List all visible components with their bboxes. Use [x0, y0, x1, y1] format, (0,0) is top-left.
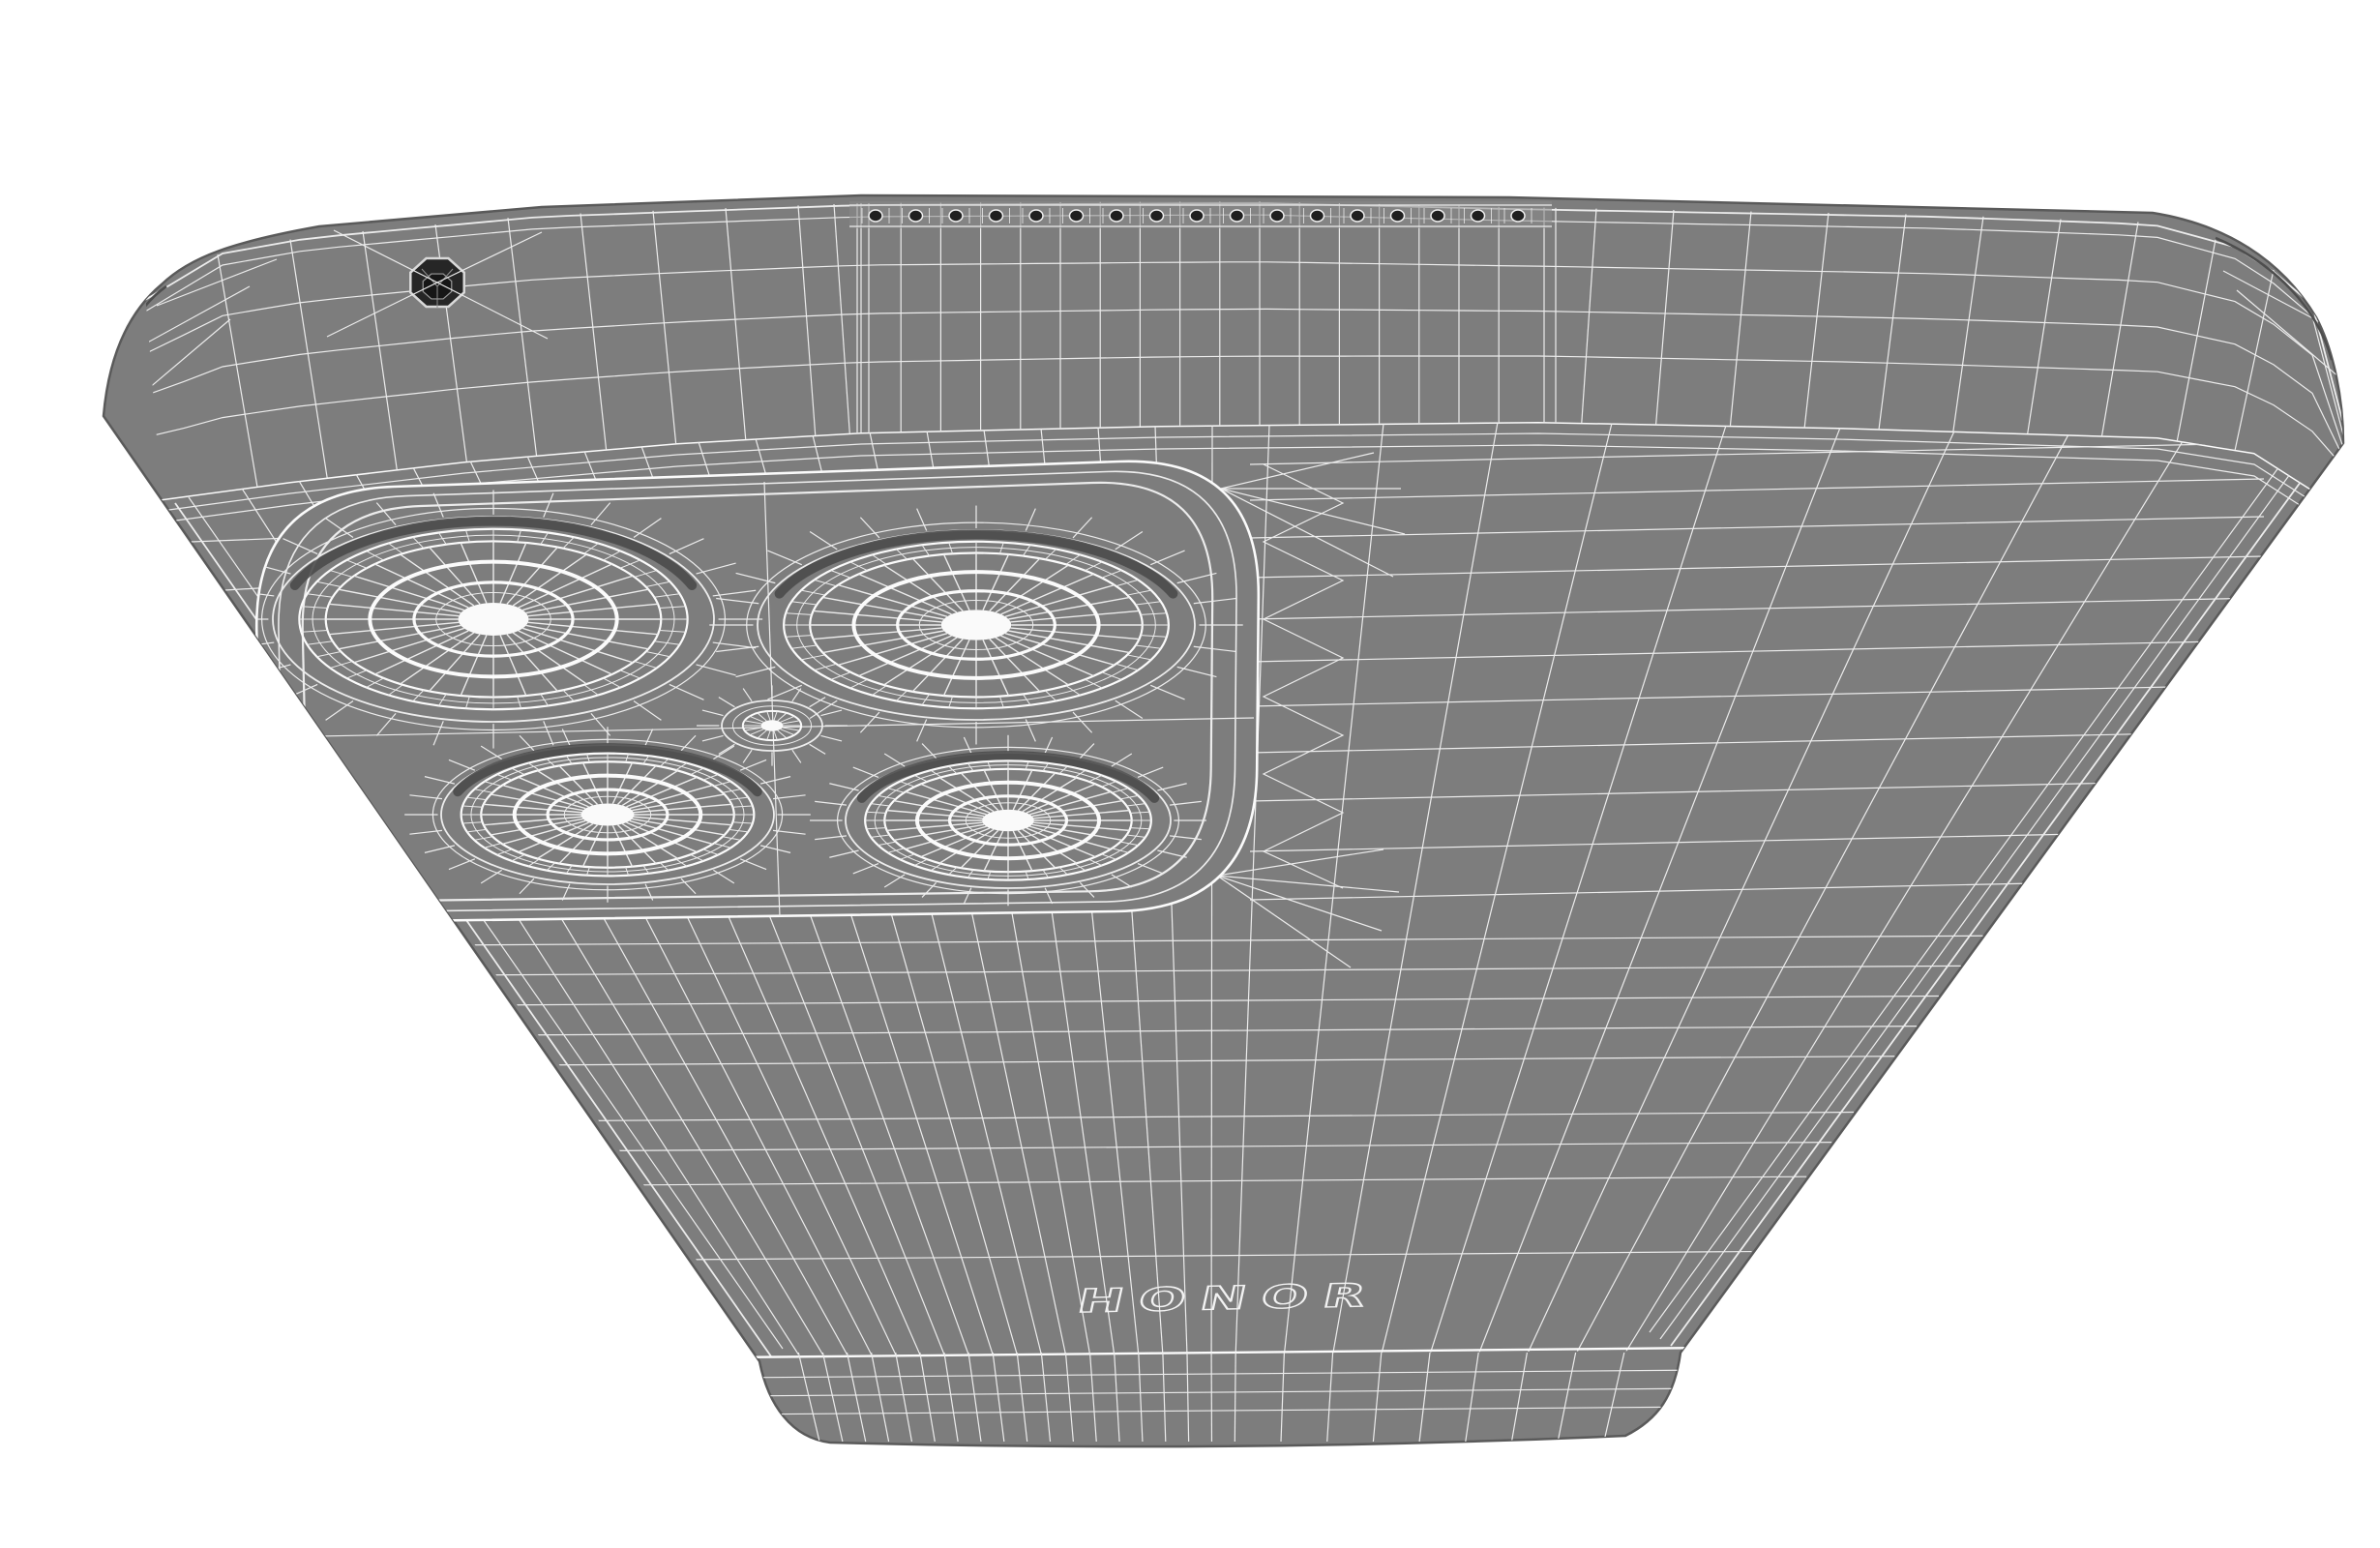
- speaker-grille: [849, 201, 1552, 228]
- honor-logo: HONOR: [1073, 1277, 1384, 1321]
- wireframe-render: HONOR: [0, 0, 2380, 1548]
- honor-logo-text: HONOR: [1074, 1277, 1384, 1321]
- flash-sensor: [697, 685, 848, 765]
- phone-3d-wireframe: HONOR: [0, 0, 2380, 1548]
